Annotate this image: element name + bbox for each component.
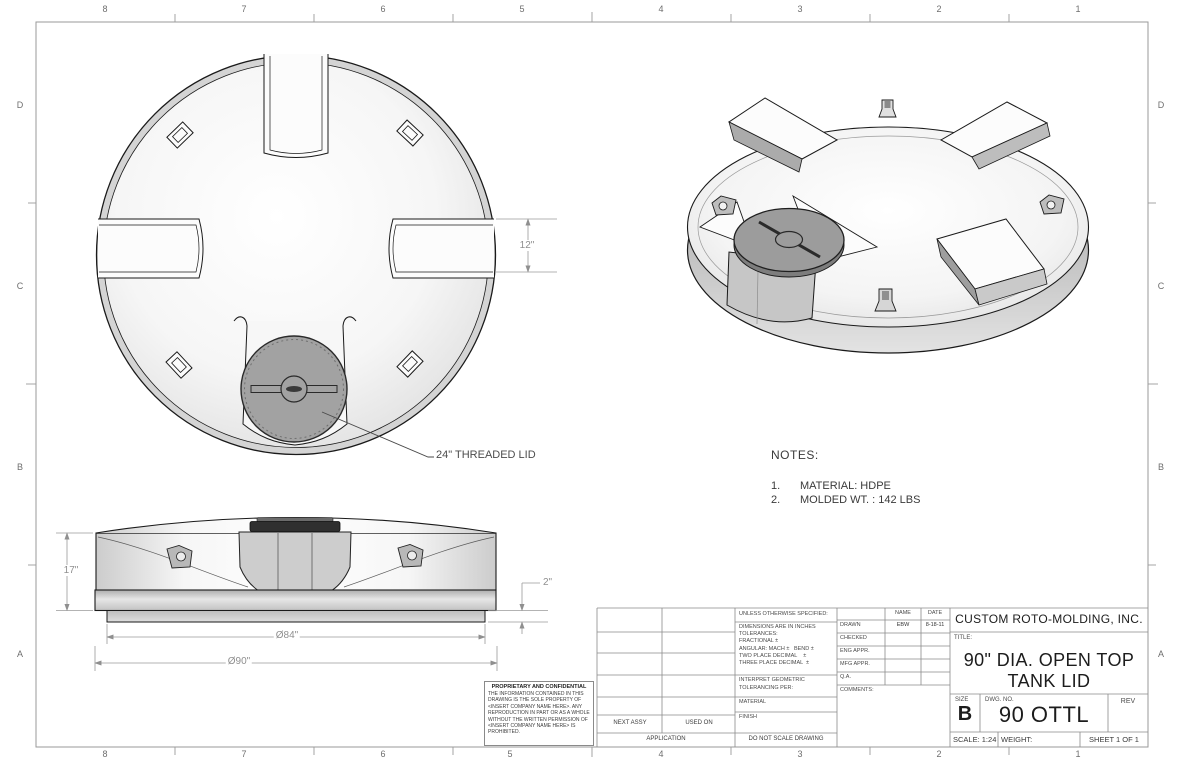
note-item-num: 1.	[771, 480, 780, 492]
border-row-label: A	[1158, 650, 1164, 660]
sheet-label: SHEET 1 OF 1	[1089, 736, 1139, 744]
dim-label-notch-width: 12"	[518, 240, 537, 251]
border-col-label: 4	[658, 750, 663, 760]
size-value: B	[958, 703, 972, 725]
tolerance-line: TWO PLACE DECIMAL ±	[739, 653, 835, 660]
name-header: NAME	[895, 610, 911, 616]
dim-label-lip: 2"	[543, 577, 552, 588]
border-col-label: 3	[797, 750, 802, 760]
interpret-geometric: INTERPRET GEOMETRIC	[739, 677, 805, 683]
dim-label-dia-90: Ø90"	[226, 656, 252, 667]
application-label: APPLICATION	[646, 736, 685, 743]
unless-otherwise-specified: UNLESS OTHERWISE SPECIFIED:	[739, 611, 828, 617]
border-col-label: 7	[241, 750, 246, 760]
border-col-label: 8	[102, 750, 107, 760]
tolerance-line: TOLERANCES:	[739, 631, 835, 638]
border-col-label: 6	[380, 5, 385, 15]
iso-view	[688, 98, 1089, 353]
border-col-label: 6	[380, 750, 385, 760]
approval-row-label: MFG APPR.	[840, 661, 870, 667]
tolerance-notes: DIMENSIONS ARE IN INCHES TOLERANCES: FRA…	[739, 624, 835, 667]
dim-label-dia-84: Ø84"	[274, 630, 300, 641]
weight-label: WEIGHT:	[1001, 736, 1032, 744]
border-col-label: 8	[102, 5, 107, 15]
border-col-label: 4	[658, 5, 663, 15]
border-row-label: B	[17, 463, 23, 473]
date-header: DATE	[928, 610, 942, 616]
approval-row-label: ENG APPR.	[840, 648, 870, 654]
dwg-no-value: 90 OTTL	[999, 703, 1089, 727]
company-name: CUSTOM ROTO-MOLDING, INC.	[955, 613, 1143, 626]
do-not-scale-drawing: DO NOT SCALE DRAWING	[748, 736, 823, 743]
border-col-label: 1	[1075, 5, 1080, 15]
tolerancing-per: TOLERANCING PER:	[739, 685, 793, 691]
material-label: MATERIAL	[739, 699, 766, 705]
tolerance-line: FRACTIONAL ±	[739, 638, 835, 645]
border-row-label: D	[1158, 101, 1165, 111]
scale-value: SCALE: 1:24	[953, 736, 996, 744]
proprietary-body: THE INFORMATION CONTAINED IN THIS DRAWIN…	[485, 690, 593, 737]
dim-label-height: 17"	[62, 565, 81, 576]
drawing-title-line1: 90" DIA. OPEN TOP	[964, 651, 1135, 671]
border-row-label: B	[1158, 463, 1164, 473]
drawn-by-name: EBW	[897, 622, 910, 628]
next-assy-label: NEXT ASSY	[613, 720, 646, 727]
threaded-lid-side	[250, 522, 340, 532]
tolerance-line: THREE PLACE DECIMAL ±	[739, 660, 835, 667]
title-label: TITLE:	[954, 635, 972, 642]
tolerance-line: DIMENSIONS ARE IN INCHES	[739, 624, 835, 631]
border-row-label: C	[17, 282, 24, 292]
drawing-title-line2: TANK LID	[1008, 672, 1091, 692]
drawing-sheet: 8 7 6 5 4 3 2 1 8 7 6 5 4 3 2 1 D C B A …	[0, 0, 1185, 768]
approval-row-label: COMMENTS:	[840, 687, 874, 693]
threaded-lid-top	[234, 317, 356, 445]
finish-label: FINISH	[739, 714, 757, 720]
tolerance-line: ANGULAR: MACH ± BEND ±	[739, 646, 835, 653]
border-col-label: 1	[1075, 750, 1080, 760]
border-col-label: 5	[507, 750, 512, 760]
note-item-num: 2.	[771, 494, 780, 506]
border-col-label: 3	[797, 5, 802, 15]
border-col-label: 7	[241, 5, 246, 15]
border-col-label: 2	[936, 5, 941, 15]
approval-row-label: CHECKED	[840, 635, 867, 641]
approval-row-label: DRAWN	[840, 622, 861, 628]
dim-90	[95, 646, 497, 671]
top-view	[97, 54, 558, 457]
border-row-label: D	[17, 101, 24, 111]
drawn-date: 8-18-11	[926, 622, 945, 628]
notes-heading: NOTES:	[771, 449, 819, 462]
used-on-label: USED ON	[685, 720, 712, 727]
proprietary-notice: PROPRIETARY AND CONFIDENTIAL THE INFORMA…	[484, 681, 594, 746]
border-row-label: C	[1158, 282, 1165, 292]
rev-label: REV	[1121, 698, 1135, 706]
dim-2	[488, 583, 548, 634]
side-view	[56, 518, 548, 672]
proprietary-heading: PROPRIETARY AND CONFIDENTIAL	[485, 684, 593, 690]
border-col-label: 2	[936, 750, 941, 760]
border-row-label: A	[17, 650, 23, 660]
note-item-text: MOLDED WT. : 142 LBS	[800, 494, 920, 506]
approval-row-label: Q.A.	[840, 674, 851, 680]
note-item-text: MATERIAL: HDPE	[800, 480, 891, 492]
border-col-label: 5	[519, 5, 524, 15]
dim-callout-threaded-lid: 24" THREADED LID	[436, 449, 536, 461]
